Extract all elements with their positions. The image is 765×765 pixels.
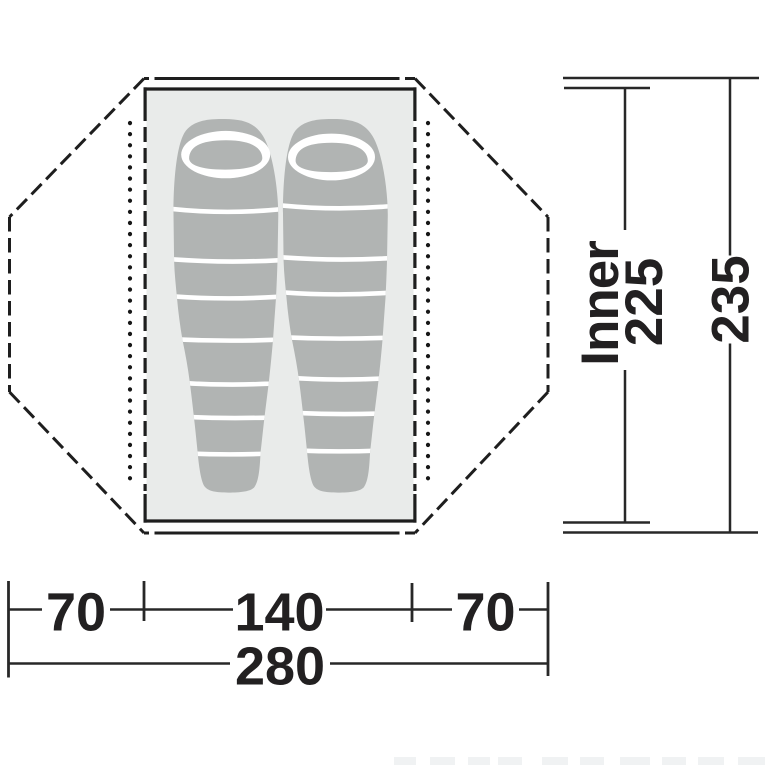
svg-text:70: 70 — [46, 583, 106, 643]
svg-text:225: 225 — [615, 258, 674, 346]
svg-text:140: 140 — [234, 583, 324, 643]
svg-text:70: 70 — [455, 583, 515, 643]
svg-text:280: 280 — [235, 637, 325, 697]
svg-text:235: 235 — [702, 255, 761, 343]
